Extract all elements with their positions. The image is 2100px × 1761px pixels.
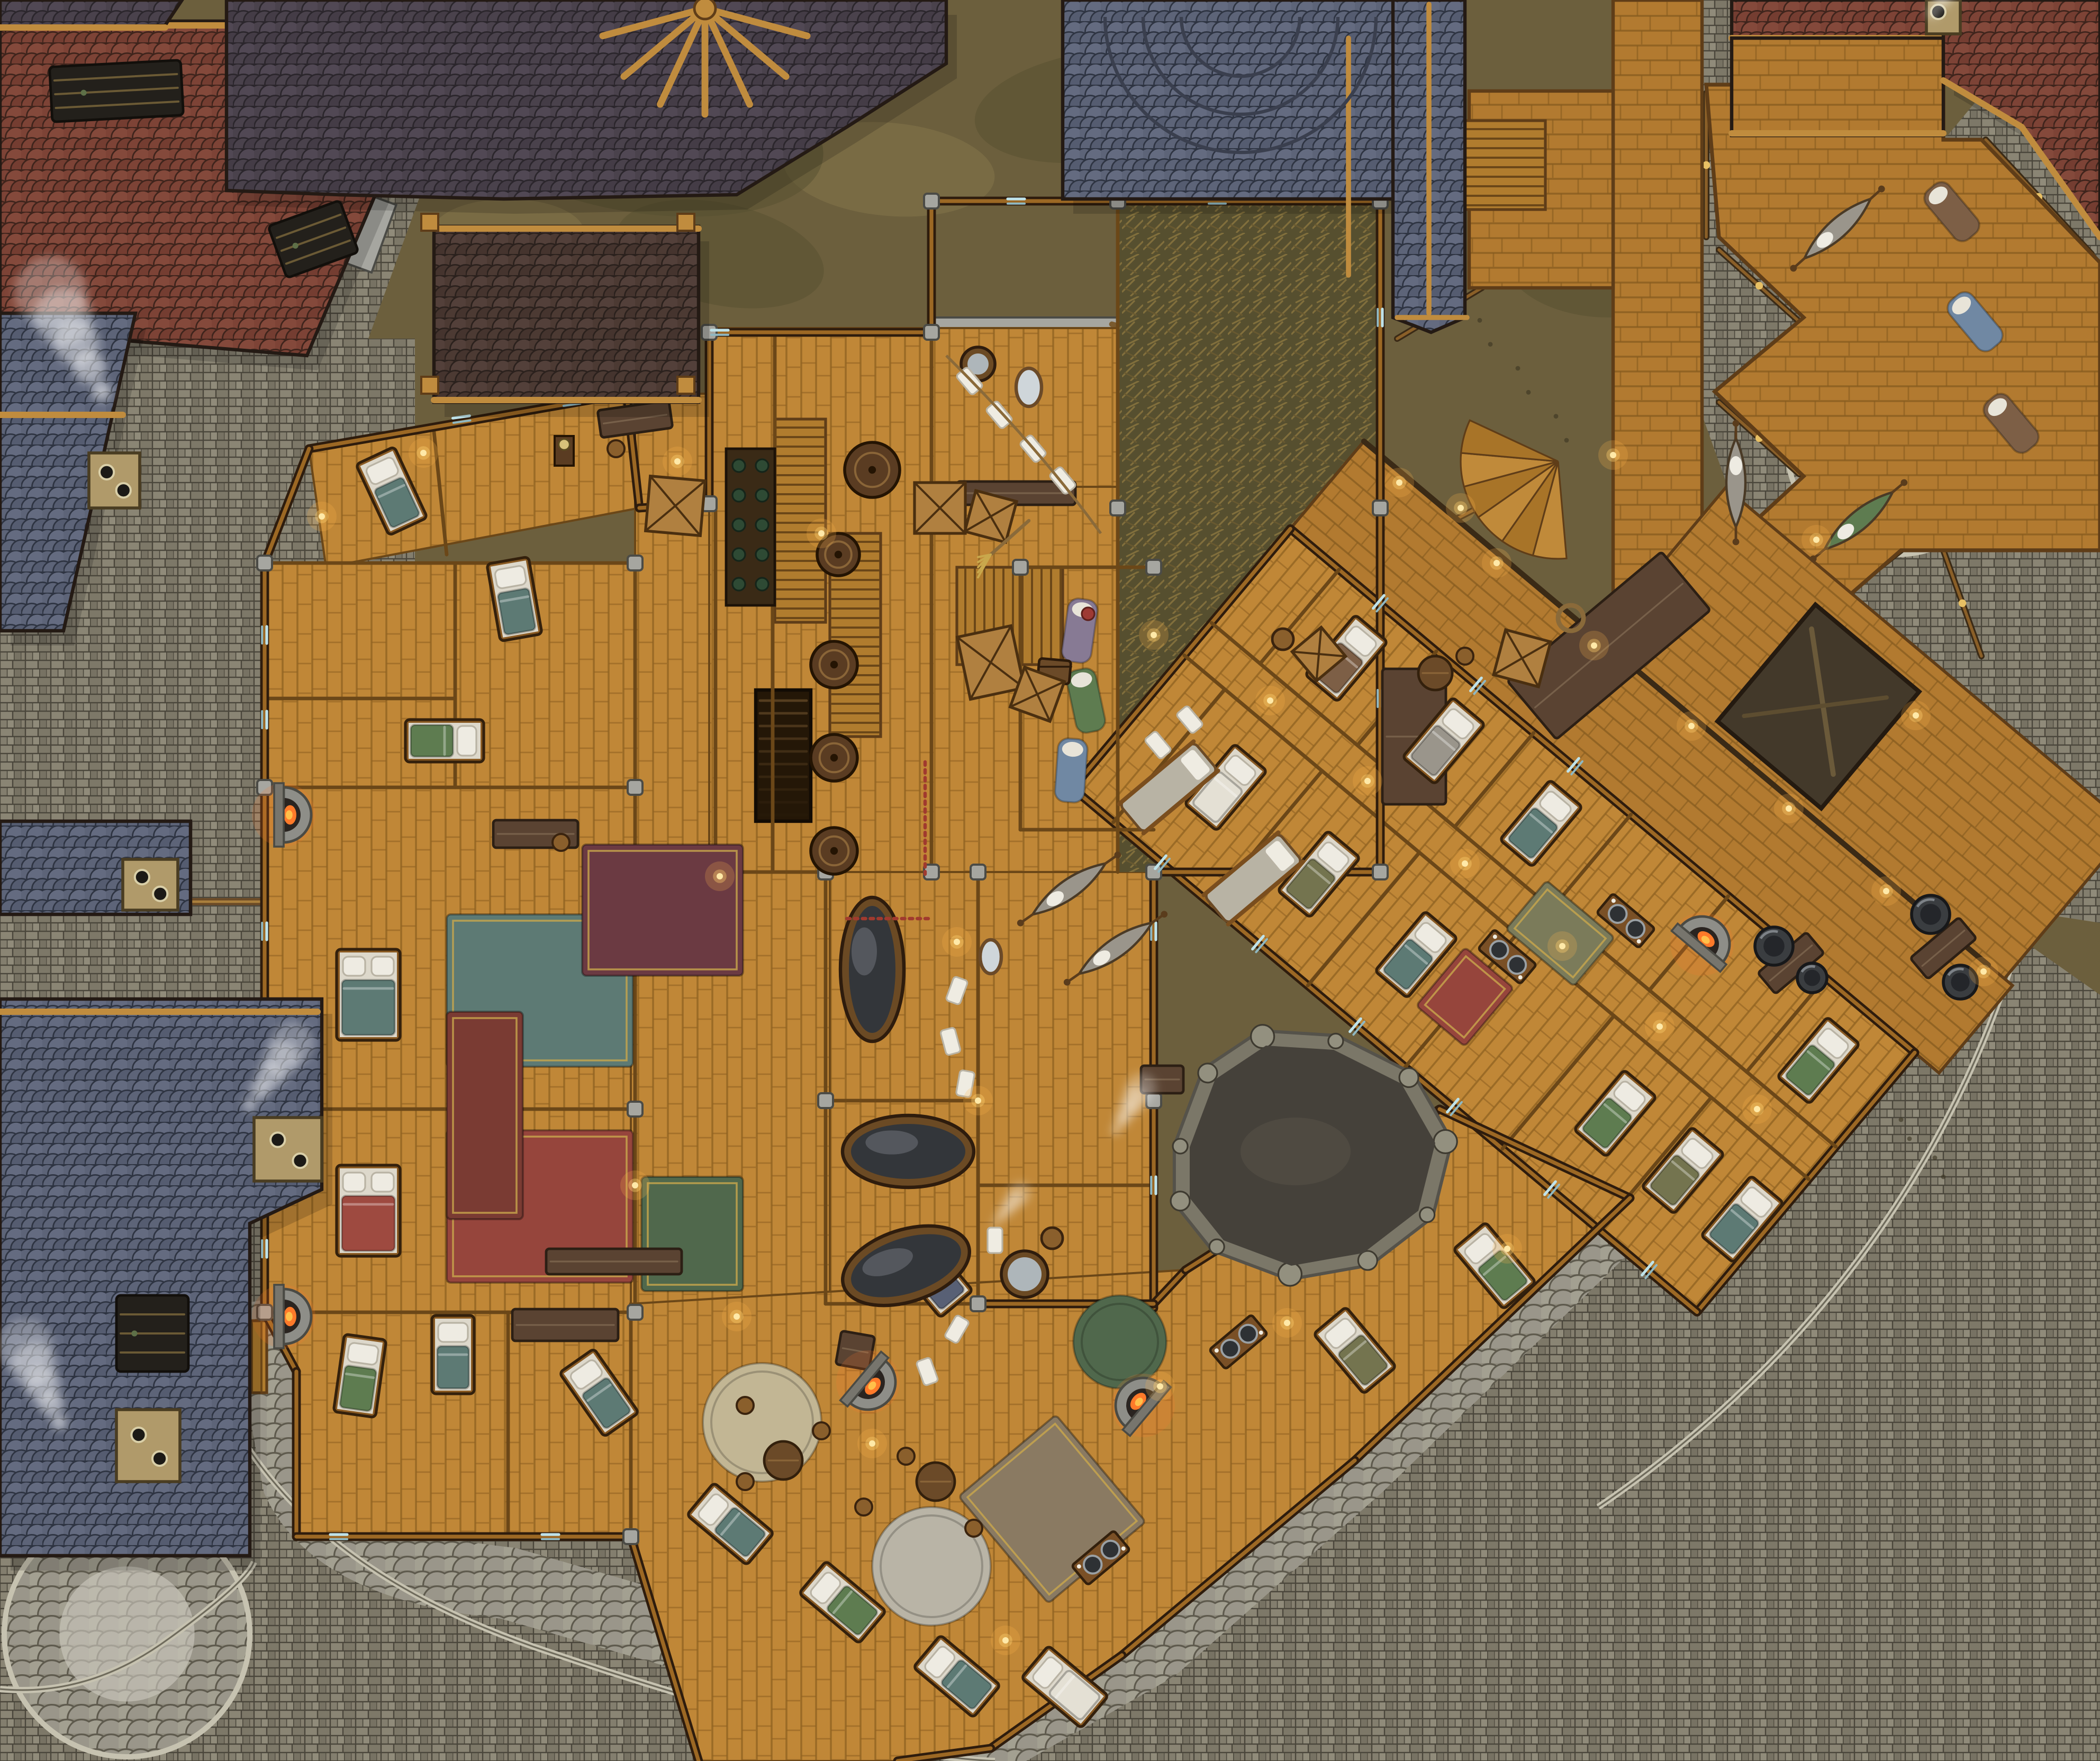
pool-stone — [1173, 1139, 1188, 1154]
barrel-bung — [835, 551, 842, 558]
footprints — [1488, 342, 1493, 347]
candle-light — [420, 450, 427, 456]
smoke-puff — [1111, 1126, 1119, 1134]
stairwell-down — [756, 690, 811, 821]
candle-light — [869, 1440, 875, 1447]
smoke-puff — [244, 1099, 256, 1111]
wine-bottle — [756, 548, 768, 561]
table — [512, 1309, 618, 1341]
candle-light — [1267, 697, 1273, 704]
footprints — [1941, 1175, 1946, 1179]
candle-light — [1980, 968, 1987, 975]
stone-post — [818, 1093, 833, 1108]
smoke-puff — [992, 1220, 998, 1226]
bucket — [1042, 1228, 1063, 1249]
stone-post — [623, 1529, 638, 1544]
hearth-base — [274, 1285, 284, 1348]
table — [546, 1249, 682, 1274]
bed — [432, 1315, 474, 1394]
mirror — [980, 940, 1001, 974]
candle-light — [1284, 1320, 1290, 1326]
hammock-pillow — [1730, 456, 1742, 475]
roof-post — [421, 214, 438, 231]
stool — [855, 1499, 872, 1515]
fire-core — [286, 810, 293, 820]
brazier-bowl — [1763, 936, 1785, 957]
pool-stone — [1171, 1192, 1190, 1211]
pillow — [372, 957, 394, 976]
candle-light — [1364, 778, 1371, 784]
barrel-bung — [830, 754, 838, 761]
wine-bottle — [756, 519, 768, 531]
pillow — [343, 957, 365, 976]
candle-light — [1591, 642, 1597, 649]
fire-core — [286, 1312, 293, 1321]
candle-light — [1913, 712, 1919, 719]
roof-red-topright-band — [1732, 0, 1943, 38]
wine-bottle — [756, 578, 768, 591]
blanket — [339, 1365, 377, 1412]
towel — [988, 1228, 1002, 1253]
fireplace — [252, 1285, 315, 1348]
chimney-pot — [152, 1451, 167, 1466]
footprints — [1526, 390, 1531, 395]
chimney-pot — [99, 465, 114, 479]
water-sheen — [852, 928, 877, 976]
candle-light — [1657, 1023, 1663, 1030]
bedroll — [1054, 738, 1088, 803]
footprints — [1933, 1156, 1938, 1160]
pillow — [494, 565, 527, 589]
wall-plank-topright — [1732, 38, 1943, 135]
candle-light — [1151, 632, 1157, 638]
pillow — [372, 1173, 394, 1192]
wine-bottle — [756, 459, 768, 472]
smoke-puff — [15, 257, 87, 329]
candle-light — [1813, 537, 1820, 543]
candle-light — [1002, 1637, 1009, 1644]
chimney-pot — [293, 1154, 307, 1168]
roof-slate-center — [1063, 0, 1418, 199]
rail-lantern — [1959, 600, 1966, 607]
footprints — [1554, 414, 1559, 419]
bed — [405, 720, 484, 762]
spoke-hub — [694, 0, 716, 19]
smoke-puff — [1009, 1182, 1031, 1204]
smoke-puff — [92, 382, 111, 401]
bucket — [1272, 629, 1293, 650]
battlemap-canvas[interactable] — [0, 0, 2100, 1761]
crate — [646, 476, 705, 536]
pool-stone — [1251, 1025, 1274, 1048]
pool-stone — [1358, 1251, 1377, 1270]
smoke-puff — [270, 1022, 314, 1066]
pool-stone — [1328, 1033, 1343, 1048]
stone-post — [1146, 560, 1161, 575]
rug — [447, 1012, 523, 1219]
stone-post — [924, 194, 939, 208]
hammock-post — [1733, 539, 1740, 546]
chimney-pot — [116, 483, 131, 497]
footprints — [1564, 438, 1569, 443]
candle-light — [1883, 888, 1889, 894]
candle-light — [954, 939, 960, 945]
stool — [608, 440, 624, 457]
hearth-base — [274, 783, 284, 847]
round-tub-water — [1008, 1257, 1042, 1291]
chimney — [116, 1410, 180, 1482]
water-sheen — [865, 1130, 918, 1154]
candle-light — [632, 1182, 638, 1188]
candle-light — [674, 458, 681, 465]
footprints — [1899, 1118, 1904, 1122]
stone-post — [1373, 501, 1388, 515]
vent-moss — [131, 1330, 137, 1336]
wine-bottle — [732, 519, 745, 531]
footprints — [1516, 366, 1520, 371]
blanket — [497, 588, 536, 635]
pillow — [343, 1173, 365, 1192]
pool-stone — [1420, 1208, 1435, 1222]
brazier-bowl — [1804, 970, 1821, 986]
candle-light — [1493, 560, 1500, 566]
candle-light — [1157, 1383, 1163, 1390]
roof-porch-brown — [434, 226, 699, 402]
candle-light — [717, 873, 723, 879]
double-bed — [337, 949, 400, 1040]
pool-stone — [1434, 1130, 1457, 1153]
candle-light — [319, 513, 325, 520]
crate — [965, 491, 1017, 542]
blanket — [411, 725, 453, 757]
candle-light — [1458, 505, 1464, 511]
fireplace — [252, 783, 315, 847]
stool — [737, 1397, 754, 1414]
smoke-puff — [1126, 1073, 1156, 1104]
chimney — [254, 1118, 322, 1181]
stone-post — [257, 556, 272, 570]
round-rug — [703, 1363, 821, 1482]
wine-bottle — [732, 578, 745, 591]
roof-vent — [116, 1295, 188, 1372]
stone-post — [628, 1305, 642, 1320]
rug — [447, 1012, 523, 1219]
footprints — [1907, 1137, 1912, 1141]
smoke-puff — [0, 1319, 53, 1374]
chimney — [123, 859, 178, 910]
chimney-pot — [270, 1132, 285, 1147]
candle-light — [1688, 723, 1695, 729]
blanket — [437, 1346, 469, 1388]
cushion — [1082, 607, 1094, 620]
candle-light — [1462, 860, 1468, 867]
stool — [898, 1448, 915, 1465]
double-bed — [337, 1165, 400, 1256]
stone-post — [628, 780, 642, 795]
mirror — [1016, 368, 1042, 406]
pool-stone — [1198, 1064, 1217, 1083]
pool-stone — [1278, 1263, 1301, 1286]
stone-post — [924, 325, 939, 340]
pool-stone — [1399, 1068, 1418, 1087]
pool-stone — [1209, 1239, 1224, 1254]
pillow — [347, 1342, 379, 1365]
candle-light — [1559, 943, 1565, 949]
stool — [813, 1422, 830, 1439]
candle-light — [1504, 1246, 1510, 1252]
candle-light — [975, 1097, 981, 1104]
brazier-bowl — [1920, 904, 1941, 925]
barrel-bung — [830, 847, 838, 855]
crate — [915, 483, 965, 533]
footprints — [1478, 318, 1482, 323]
stone-post — [1110, 501, 1125, 515]
pillow — [438, 1323, 468, 1342]
candle-light — [734, 1313, 740, 1320]
stone-post — [971, 865, 985, 879]
battlemap-root — [0, 0, 2100, 1761]
chimney-pot — [135, 870, 149, 884]
brazier-bowl — [1951, 973, 1969, 991]
chimney — [89, 453, 140, 508]
crate — [1493, 630, 1551, 687]
stone-post — [1013, 560, 1028, 575]
chimney-pot — [131, 1428, 146, 1442]
smoke-puff — [52, 1415, 67, 1430]
clock-face — [559, 439, 570, 450]
wine-bottle — [732, 459, 745, 472]
pool-depth — [1241, 1118, 1351, 1185]
candle-light — [1786, 805, 1792, 812]
crate — [957, 625, 1025, 699]
bathtub — [843, 1115, 974, 1187]
bed — [333, 1334, 386, 1418]
stool — [553, 834, 569, 851]
stone-post — [971, 1296, 985, 1311]
rail-lantern — [1755, 282, 1763, 289]
chimney-pot — [153, 887, 167, 901]
candle-light — [1754, 1106, 1760, 1112]
stool — [1456, 648, 1473, 665]
stool — [965, 1520, 982, 1537]
stone-post — [1373, 865, 1388, 879]
wine-bottle — [732, 489, 745, 502]
barrel-bung — [868, 466, 876, 474]
stone-post — [628, 1102, 642, 1116]
wine-bottle — [756, 489, 768, 502]
roof-post — [677, 377, 694, 394]
hammock-post — [1733, 420, 1740, 427]
roof-post — [677, 214, 694, 231]
pillow — [457, 726, 476, 756]
stone-post — [628, 556, 642, 570]
candle-light — [1610, 452, 1616, 458]
stool — [737, 1473, 754, 1490]
roof-vent — [49, 60, 183, 122]
smoke-puff — [1927, 7, 1938, 18]
wine-bottle — [732, 548, 745, 561]
candle-light — [818, 530, 825, 537]
roof-post — [421, 377, 438, 394]
candle-light — [1396, 479, 1402, 486]
stairs — [1461, 121, 1545, 210]
barrel-bung — [830, 661, 838, 668]
